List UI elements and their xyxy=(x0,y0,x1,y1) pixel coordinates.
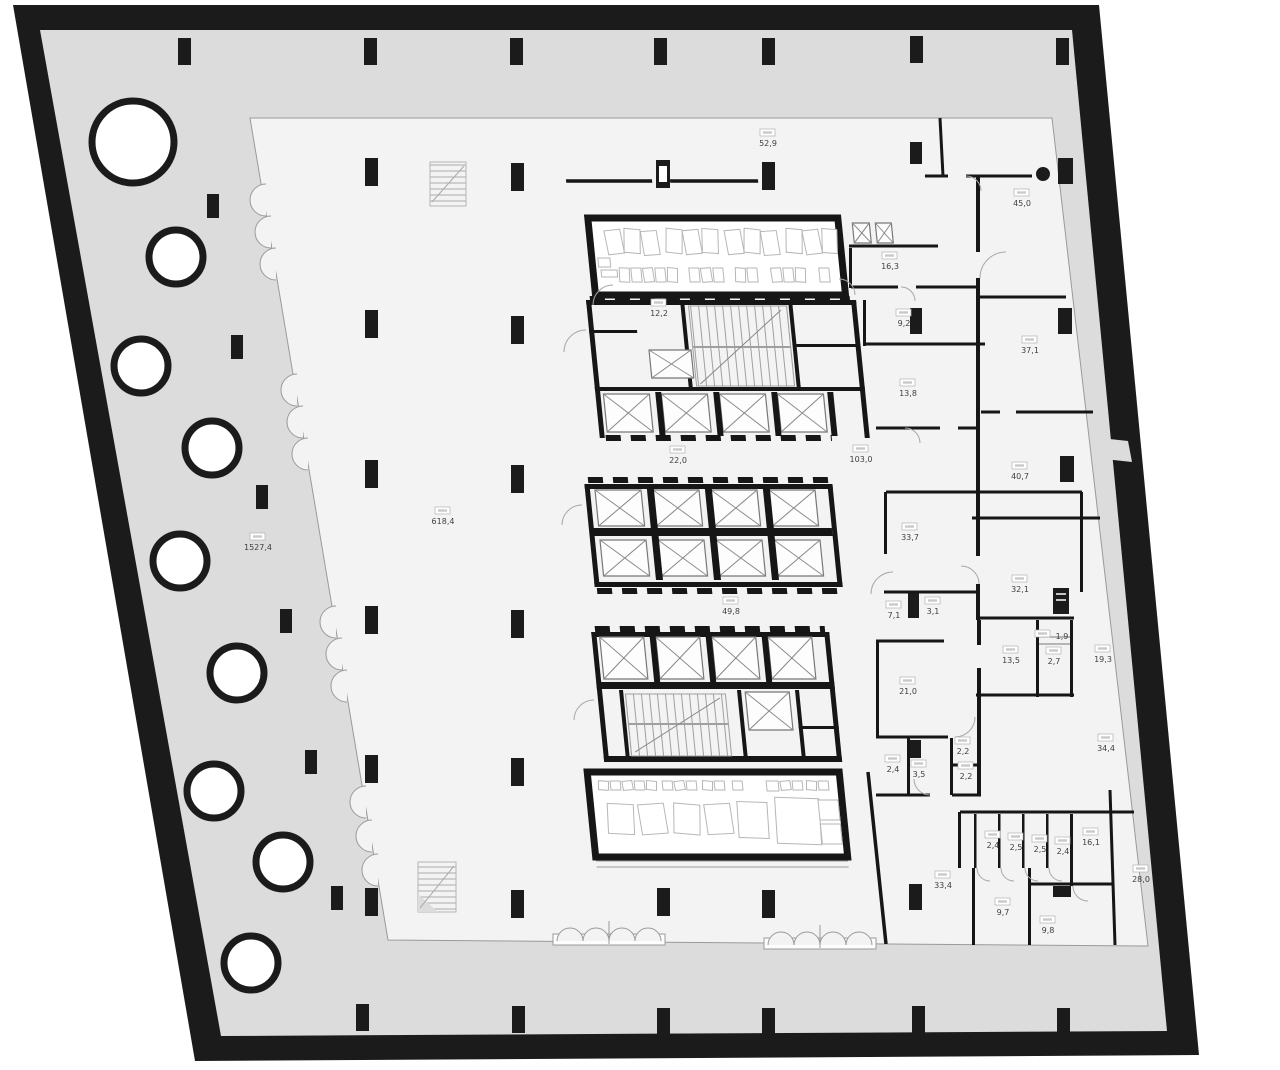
area-value: 52,9 xyxy=(759,139,777,148)
area-label: 52,9 xyxy=(759,129,777,148)
area-value: 1527,4 xyxy=(244,543,272,552)
area-value: 13,8 xyxy=(899,389,917,398)
area-value: 28,0 xyxy=(1132,875,1150,884)
area-label: 19,3 xyxy=(1094,645,1112,664)
area-value: 3,5 xyxy=(913,770,926,779)
area-label: 3,5 xyxy=(911,760,926,779)
area-value: 103,0 xyxy=(850,455,873,464)
area-value: 7,1 xyxy=(888,611,901,620)
area-value: 2,5 xyxy=(1034,845,1047,854)
area-value: 32,1 xyxy=(1011,585,1029,594)
area-label: 22,0 xyxy=(669,446,687,465)
area-label: 49,8 xyxy=(722,597,740,616)
area-value: 9,7 xyxy=(997,908,1010,917)
area-label: 33,7 xyxy=(901,523,919,542)
exterior-stairs-icon-bottom xyxy=(418,862,456,912)
area-value: 2,4 xyxy=(1057,847,1070,856)
area-label: 32,1 xyxy=(1011,575,1029,594)
area-label: 21,0 xyxy=(899,677,917,696)
area-label: 40,7 xyxy=(1011,462,1029,481)
area-value: 16,1 xyxy=(1082,838,1100,847)
area-label: 2,2 xyxy=(958,762,973,781)
area-value: 16,3 xyxy=(881,262,899,271)
area-value: 49,8 xyxy=(722,607,740,616)
storage-room-top xyxy=(588,218,846,295)
area-label: 13,5 xyxy=(1002,646,1020,665)
area-label: 2,2 xyxy=(955,737,970,756)
electrical-panel xyxy=(1053,588,1069,614)
elevator-core-a xyxy=(603,392,837,436)
area-label: 9,7 xyxy=(995,898,1010,917)
area-label: 37,1 xyxy=(1021,336,1039,355)
area-value: 9,2 xyxy=(898,319,911,328)
stair-core-a xyxy=(689,306,795,386)
area-label: 34,4 xyxy=(1097,734,1115,753)
area-value: 19,3 xyxy=(1094,655,1112,664)
area-value: 2,5 xyxy=(1010,843,1023,852)
stair-core-c xyxy=(625,694,731,756)
area-value: 37,1 xyxy=(1021,346,1039,355)
floor-plan-canvas: 52,945,016,312,29,237,113,822,0103,040,7… xyxy=(0,0,1280,1070)
area-label: 2,5 xyxy=(1032,835,1047,854)
core-b xyxy=(584,480,843,591)
area-label: 2,4 xyxy=(885,755,900,774)
area-label: 2,4 xyxy=(1055,837,1070,856)
area-label: 2,5 xyxy=(1008,833,1023,852)
area-value: 618,4 xyxy=(432,517,455,526)
area-value: 40,7 xyxy=(1011,472,1029,481)
area-label: 2,4 xyxy=(985,831,1000,850)
area-label: 9,2 xyxy=(896,309,911,328)
area-value: 3,1 xyxy=(927,607,940,616)
area-value: 2,2 xyxy=(957,747,970,756)
area-value: 2,4 xyxy=(887,765,900,774)
area-label: 7,1 xyxy=(886,601,901,620)
area-value: 34,4 xyxy=(1097,744,1115,753)
area-value: 22,0 xyxy=(669,456,687,465)
area-value: 2,2 xyxy=(960,772,973,781)
page: 52,945,016,312,29,237,113,822,0103,040,7… xyxy=(0,0,1280,1070)
area-label: 3,1 xyxy=(925,597,940,616)
area-value: 9,8 xyxy=(1042,926,1055,935)
area-value: 45,0 xyxy=(1013,199,1031,208)
area-value: 33,4 xyxy=(934,881,952,890)
area-value: 12,2 xyxy=(650,309,668,318)
area-label: 45,0 xyxy=(1013,189,1031,208)
area-label: 12,2 xyxy=(650,299,668,318)
area-value: 2,4 xyxy=(987,841,1000,850)
area-label: 28,0 xyxy=(1132,865,1150,884)
area-value: 21,0 xyxy=(899,687,917,696)
area-label: 13,8 xyxy=(899,379,917,398)
area-label: 16,1 xyxy=(1082,828,1100,847)
area-label: 2,7 xyxy=(1046,647,1061,666)
area-label: 9,8 xyxy=(1040,916,1055,935)
area-label: 33,4 xyxy=(934,871,952,890)
area-value: 1,9 xyxy=(1056,632,1069,641)
area-label: 16,3 xyxy=(881,252,899,271)
area-value: 13,5 xyxy=(1002,656,1020,665)
exterior-stairs-icon-top xyxy=(430,162,466,206)
area-value: 2,7 xyxy=(1048,657,1061,666)
storage-room-bottom xyxy=(587,772,849,867)
area-value: 33,7 xyxy=(901,533,919,542)
